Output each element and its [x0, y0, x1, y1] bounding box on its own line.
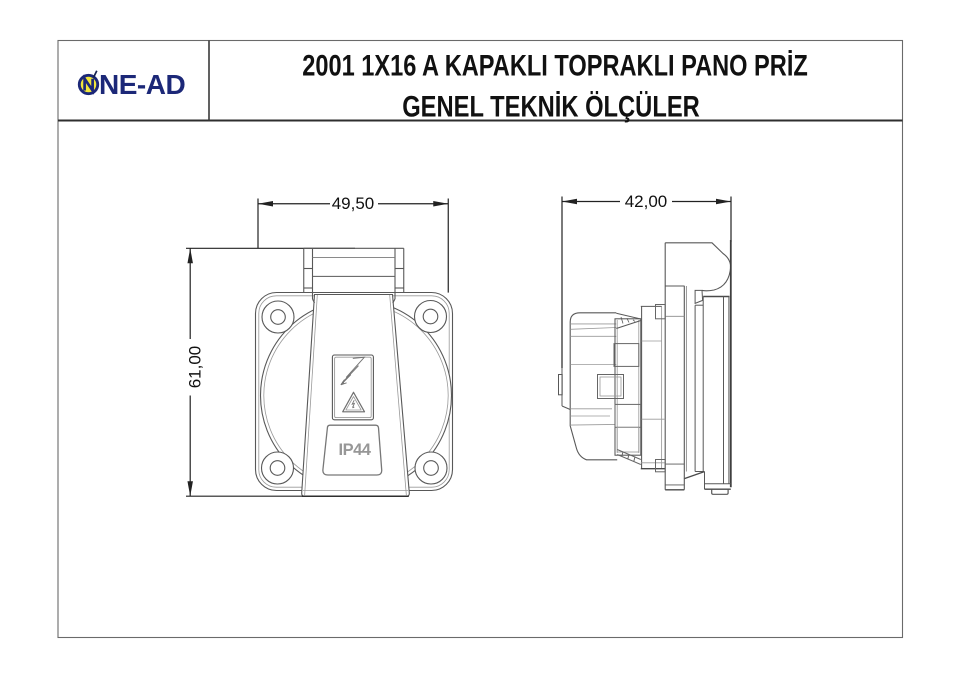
svg-text:42,00: 42,00 — [625, 192, 668, 211]
svg-text:2001 1X16 A KAPAKLI TOPRAKLI P: 2001 1X16 A KAPAKLI TOPRAKLI PANO PRİZ — [302, 49, 808, 82]
svg-text:IP44: IP44 — [339, 441, 372, 459]
svg-text:49,50: 49,50 — [332, 194, 375, 213]
svg-text:GENEL TEKNİK ÖLÇÜLER: GENEL TEKNİK ÖLÇÜLER — [402, 90, 700, 123]
svg-text:NE-AD: NE-AD — [99, 69, 185, 100]
svg-text:61,00: 61,00 — [186, 346, 205, 389]
